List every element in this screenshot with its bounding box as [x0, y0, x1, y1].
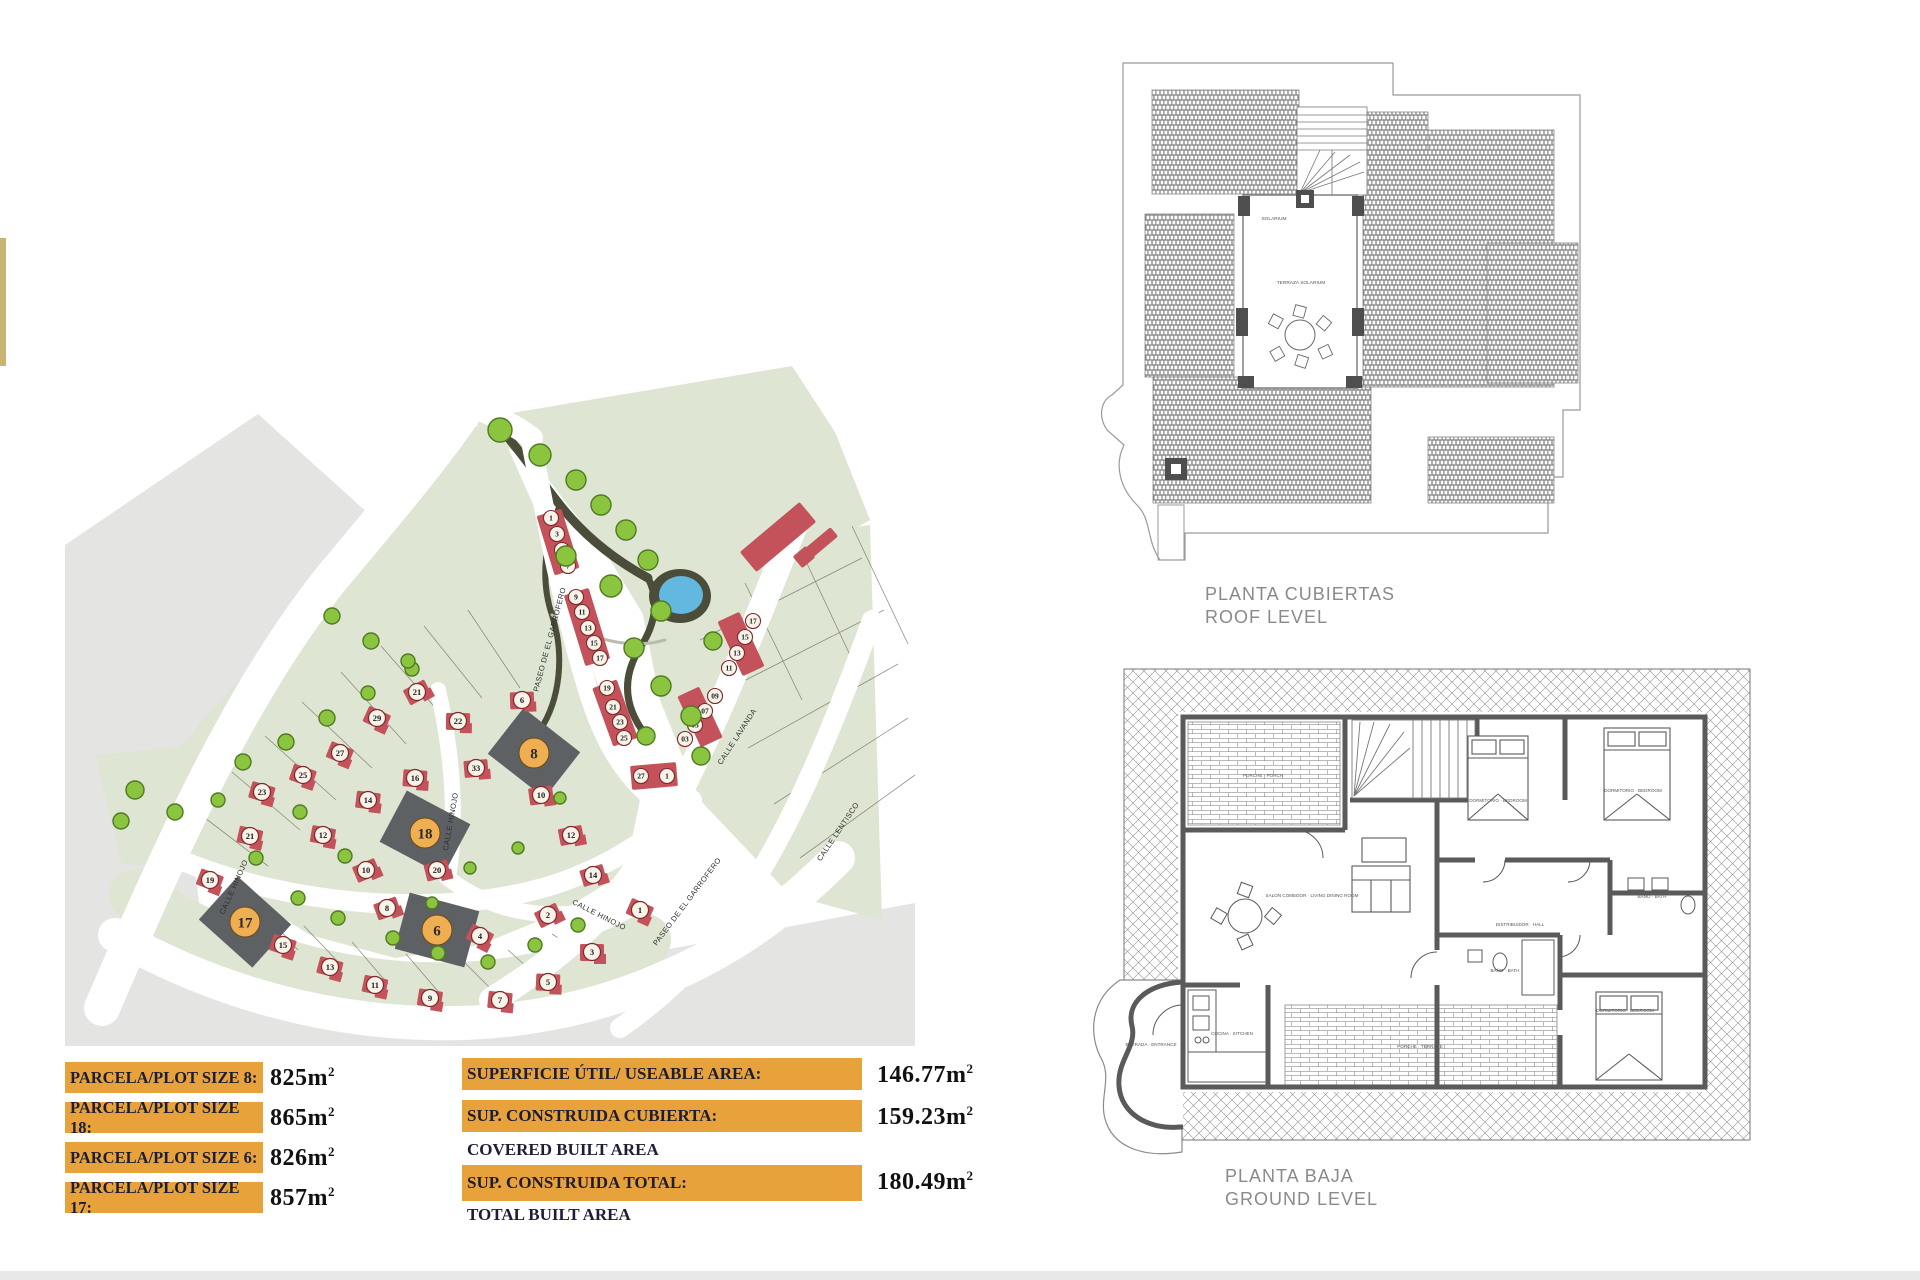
unit-number: 21: [609, 703, 617, 712]
tree-icon: [278, 734, 294, 750]
ground-room-label: DISTRIBUIDOR · HALL: [1496, 922, 1545, 927]
page-edge-tab: [0, 238, 6, 366]
plot-number: 22: [454, 716, 463, 726]
tree-icon: [331, 911, 345, 925]
plot-number: 13: [326, 962, 335, 972]
tree-icon: [566, 470, 586, 490]
bed-icon: [1604, 728, 1670, 820]
plot-number: 19: [206, 875, 215, 885]
tree-icon: [401, 654, 415, 668]
built-area-table: SUPERFICIE ÚTIL/ USEABLE AREA:146.77m2SU…: [462, 1058, 1042, 1233]
ground-room-label: PORCHE · PORCH: [1243, 773, 1283, 778]
ground-plan-title-en: GROUND LEVEL: [1225, 1188, 1378, 1211]
highlighted-plot-number: 17: [238, 915, 254, 931]
unit-number: 13: [584, 624, 592, 633]
plot-size-value: 180.49m2: [877, 1168, 974, 1196]
built-area-label: SUP. CONSTRUIDA TOTAL:: [462, 1165, 862, 1201]
roof-plan: SOLARIUMTERRAZA SOLARIUM: [1090, 50, 1820, 610]
plot-size-label: PARCELA/PLOT SIZE 6:: [65, 1142, 263, 1173]
plot-number: 12: [319, 830, 328, 840]
plot-number: 25: [299, 770, 308, 780]
roof-room-label: SOLARIUM: [1261, 216, 1286, 222]
tree-icon: [528, 938, 542, 952]
tree-icon: [651, 601, 671, 621]
ground-room-label: SALON COMEDOR · LIVING DINING ROOM: [1266, 893, 1359, 898]
tree-icon: [386, 931, 400, 945]
ground-room-label: DORMITORIO · BEDROOM: [1469, 798, 1527, 803]
plot-size-row: PARCELA/PLOT SIZE 17:857m2: [65, 1182, 405, 1213]
tree-icon: [363, 633, 379, 649]
plot-number: 14: [589, 870, 598, 880]
tree-icon: [704, 632, 722, 650]
built-area-label: SUPERFICIE ÚTIL/ USEABLE AREA:: [462, 1058, 862, 1090]
highlighted-plot-number: 18: [418, 826, 433, 842]
ground-plan: PORCHE · PORCHSALON COMEDOR · LIVING DIN…: [1090, 655, 1820, 1240]
tree-icon: [637, 727, 655, 745]
plot-size-value: 857m2: [270, 1184, 335, 1212]
plot-number: 16: [411, 773, 420, 783]
tree-icon: [319, 710, 335, 726]
unit-number: 07: [701, 707, 709, 716]
tree-icon: [600, 575, 622, 597]
tree-icon: [651, 676, 671, 696]
unit-number: 13: [733, 649, 741, 658]
plot-number: 27: [336, 748, 345, 758]
tree-icon: [338, 849, 352, 863]
plot-size-value: 825m2: [270, 1064, 335, 1092]
tree-icon: [426, 897, 438, 909]
ground-plan-title: PLANTA BAJA GROUND LEVEL: [1225, 1165, 1378, 1211]
built-area-sublabel: TOTAL BUILT AREA: [467, 1205, 631, 1225]
unit-number: 09: [711, 692, 719, 701]
plot-number: 21: [413, 687, 422, 697]
tree-icon: [512, 842, 524, 854]
plot-number: 1: [638, 905, 642, 915]
ground-room-label: ENTRADA · ENTRANCE: [1125, 1042, 1176, 1047]
plot-size-row: PARCELA/PLOT SIZE 8:825m2: [65, 1062, 405, 1093]
tree-icon: [431, 946, 445, 960]
tree-icon: [211, 793, 225, 807]
built-area-label: SUP. CONSTRUIDA CUBIERTA:: [462, 1100, 862, 1132]
tree-icon: [624, 638, 644, 658]
tree-icon: [591, 495, 611, 515]
unit-number: 15: [590, 639, 598, 648]
plot-number: 23: [258, 787, 267, 797]
unit-number: 25: [620, 734, 628, 743]
unit-number: 17: [749, 617, 757, 626]
plot-number: 20: [433, 865, 442, 875]
plot-number: 12: [567, 830, 576, 840]
ground-stairs: [1352, 720, 1475, 798]
tree-icon: [571, 918, 585, 932]
roof-plan-title-en: ROOF LEVEL: [1205, 606, 1395, 629]
plot-number: 9: [428, 993, 432, 1003]
ground-room-label: BAÑO · BATH: [1637, 893, 1666, 899]
tree-icon: [291, 891, 305, 905]
plot-number: 10: [537, 790, 546, 800]
tree-icon: [529, 444, 551, 466]
unit-number: 3: [555, 530, 559, 539]
site-plan-map: 818617 212927252321121416226331012201481…: [60, 360, 920, 1055]
ground-plan-title-es: PLANTA BAJA: [1225, 1165, 1378, 1188]
plot-number: 10: [362, 865, 371, 875]
tree-icon: [554, 792, 566, 804]
unit-number: 1: [665, 772, 669, 781]
plot-number: 33: [472, 763, 481, 773]
plot-size-value: 159.23m2: [877, 1103, 974, 1131]
tree-icon: [464, 862, 476, 874]
ground-room-label: DORMITORIO · BEDROOM: [1604, 788, 1662, 793]
plot-number: 2: [546, 910, 550, 920]
tree-icon: [681, 706, 701, 726]
plot-size-value: 146.77m2: [877, 1061, 974, 1089]
plot-size-label: PARCELA/PLOT SIZE 18:: [65, 1102, 263, 1133]
tree-icon: [235, 754, 251, 770]
ground-room-label: DORMITORIO · BEDROOM: [1596, 1008, 1654, 1013]
tree-icon: [481, 955, 495, 969]
tree-icon: [556, 546, 576, 566]
unit-number: 1: [549, 514, 553, 523]
plot-size-value: 826m2: [270, 1144, 335, 1172]
unit-number: 27: [637, 772, 645, 781]
unit-number: 15: [741, 633, 749, 642]
plot-number: 6: [520, 695, 524, 705]
tree-icon: [692, 747, 710, 765]
tree-icon: [167, 804, 183, 820]
unit-number: 11: [578, 608, 585, 617]
roof-plan-title: PLANTA CUBIERTAS ROOF LEVEL: [1205, 583, 1395, 629]
tree-icon: [488, 418, 512, 442]
ground-room-label: BAÑO · BATH: [1490, 967, 1519, 973]
unit-number: 23: [616, 718, 624, 727]
plot-size-label: PARCELA/PLOT SIZE 17:: [65, 1182, 263, 1213]
plot-number: 11: [371, 980, 379, 990]
plot-size-row: PARCELA/PLOT SIZE 18:865m2: [65, 1102, 405, 1133]
highlighted-plot-number: 8: [530, 746, 538, 762]
plot-number: 14: [364, 795, 373, 805]
bed-icon: [1468, 736, 1528, 820]
plot-number: 21: [246, 831, 255, 841]
unit-number: 03: [681, 735, 689, 744]
plot-size-table: PARCELA/PLOT SIZE 8:825m2PARCELA/PLOT SI…: [65, 1062, 405, 1222]
bed-icon: [1596, 992, 1662, 1080]
plot-number: 29: [373, 713, 382, 723]
unit-number: 11: [725, 664, 732, 673]
brochure-page: 818617 212927252321121416226331012201481…: [0, 0, 1920, 1280]
plot-number: 5: [546, 977, 550, 987]
tree-icon: [616, 520, 636, 540]
tree-icon: [113, 813, 129, 829]
roof-stairs: [1297, 107, 1367, 195]
built-area-sublabel: COVERED BUILT AREA: [467, 1140, 659, 1160]
tree-icon: [293, 805, 307, 819]
plot-number: 3: [590, 947, 594, 957]
roof-plan-title-es: PLANTA CUBIERTAS: [1205, 583, 1395, 606]
unit-number: 17: [596, 654, 604, 663]
tree-icon: [126, 781, 144, 799]
unit-number: 9: [574, 593, 578, 602]
ground-room-label: COCINA · KITCHEN: [1211, 1031, 1253, 1036]
plot-number: 15: [279, 940, 288, 950]
unit-number: 19: [603, 684, 611, 693]
plot-size-label: PARCELA/PLOT SIZE 8:: [65, 1062, 263, 1093]
roof-room-label: TERRAZA SOLARIUM: [1277, 280, 1326, 286]
ground-room-label: PORCHE · TERRACE: [1397, 1044, 1443, 1049]
page-bottom-edge: [0, 1271, 1920, 1280]
tree-icon: [324, 608, 340, 624]
tree-icon: [249, 851, 263, 865]
tree-icon: [361, 686, 375, 700]
tree-icon: [638, 550, 658, 570]
highlighted-plot-number: 6: [433, 923, 441, 939]
plot-size-row: PARCELA/PLOT SIZE 6:826m2: [65, 1142, 405, 1173]
plot-size-value: 865m2: [270, 1104, 335, 1132]
plot-number: 8: [385, 903, 389, 913]
